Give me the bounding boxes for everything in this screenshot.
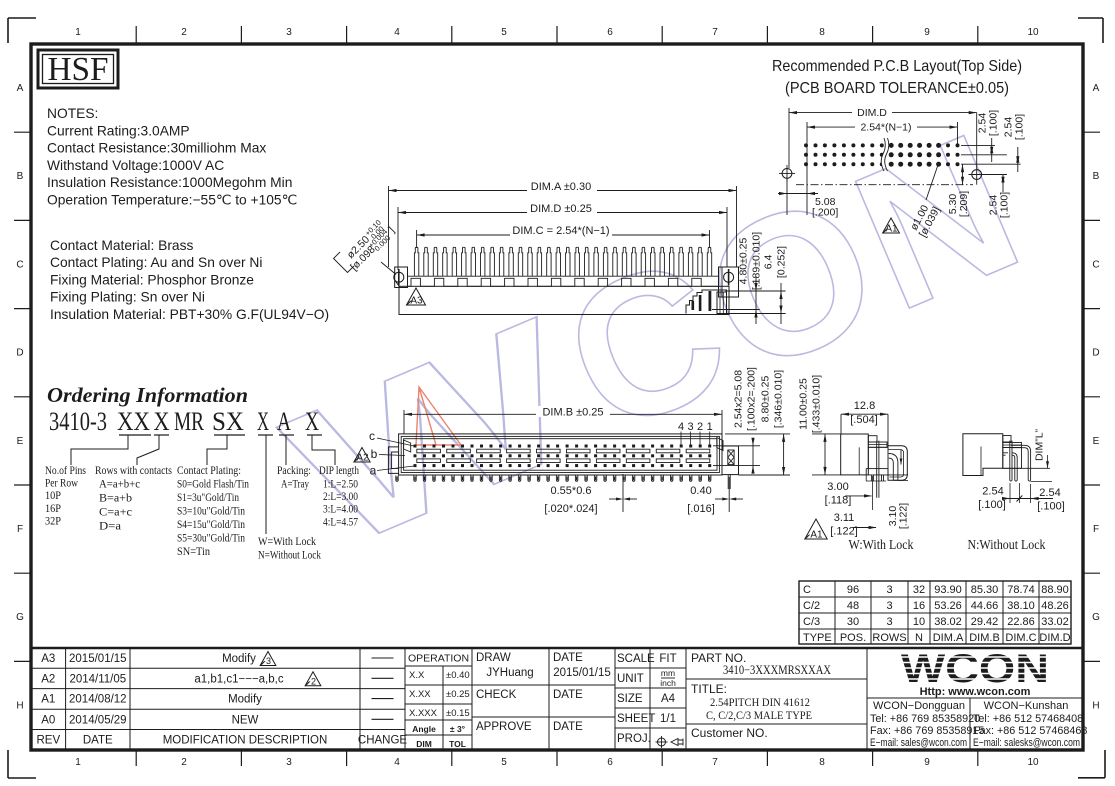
svg-text:CHECK: CHECK bbox=[476, 689, 517, 701]
svg-text:96: 96 bbox=[847, 584, 859, 596]
svg-text:DRAW: DRAW bbox=[476, 652, 511, 664]
svg-text:NEW: NEW bbox=[232, 714, 259, 726]
svg-text:MODIFICATION DESCRIPTION: MODIFICATION DESCRIPTION bbox=[163, 735, 328, 747]
svg-text:A=Tray: A=Tray bbox=[281, 477, 309, 491]
svg-text:[.122]: [.122] bbox=[898, 503, 910, 529]
svg-text:A1: A1 bbox=[810, 530, 823, 541]
svg-text:F: F bbox=[1093, 524, 1099, 535]
svg-text:TOL: TOL bbox=[449, 739, 466, 749]
svg-text:3: 3 bbox=[886, 616, 892, 628]
svg-text:3: 3 bbox=[886, 600, 892, 612]
svg-text:93.90: 93.90 bbox=[934, 584, 962, 596]
svg-text:Contact Resistance:30milliohm: Contact Resistance:30milliohm Max bbox=[47, 141, 266, 156]
svg-text:32: 32 bbox=[913, 584, 925, 596]
svg-text:DIM.D: DIM.D bbox=[857, 107, 887, 119]
svg-text:±0.25: ±0.25 bbox=[446, 689, 470, 700]
svg-text:5: 5 bbox=[501, 757, 507, 768]
svg-text:C: C bbox=[803, 584, 811, 596]
svg-text:a1,b1,c1−−−a,b,c: a1,b1,c1−−−a,b,c bbox=[194, 673, 283, 685]
svg-text:A=a+b+c: A=a+b+c bbox=[99, 477, 140, 491]
svg-text:F: F bbox=[17, 524, 23, 535]
svg-text:11.00±0.25: 11.00±0.25 bbox=[798, 378, 810, 430]
svg-text:Insulation Material: PBT+30%: Insulation Material: PBT+30% G.F(UL94V−O… bbox=[50, 307, 329, 322]
svg-text:2014/08/12: 2014/08/12 bbox=[69, 694, 127, 706]
svg-text:DIM: DIM bbox=[416, 739, 432, 749]
svg-text:C: C bbox=[16, 259, 23, 270]
svg-text:DIP length: DIP length bbox=[319, 463, 359, 477]
svg-text:DATE: DATE bbox=[553, 721, 583, 733]
svg-text:DIM.B ±0.25: DIM.B ±0.25 bbox=[542, 407, 603, 419]
svg-text:DIM.D ±0.25: DIM.D ±0.25 bbox=[530, 203, 592, 215]
svg-text:4.80±0.25: 4.80±0.25 bbox=[738, 238, 750, 285]
svg-text:Http: www.wcon.com: Http: www.wcon.com bbox=[920, 686, 1031, 698]
svg-text:E−mail: sales@wcon.com: E−mail: sales@wcon.com bbox=[870, 737, 967, 749]
svg-text:D=a: D=a bbox=[99, 519, 122, 533]
svg-text:6: 6 bbox=[607, 757, 613, 768]
svg-text:2: 2 bbox=[697, 421, 703, 433]
svg-text:E: E bbox=[17, 436, 24, 447]
svg-text:9: 9 bbox=[924, 27, 930, 38]
svg-text:[.504]: [.504] bbox=[850, 414, 878, 426]
svg-text:Fax: +86 769 85358915: Fax: +86 769 85358915 bbox=[870, 725, 984, 737]
svg-text:Operation Temperature:−55℃ t: Operation Temperature:−55℃ to +105℃ bbox=[47, 193, 297, 208]
svg-text:DIM.A ±0.30: DIM.A ±0.30 bbox=[531, 181, 591, 193]
svg-text:9: 9 bbox=[924, 757, 930, 768]
svg-text:DIM”L”: DIM”L” bbox=[1034, 428, 1046, 461]
svg-text:[.122]: [.122] bbox=[830, 526, 858, 538]
svg-text:W=With Lock: W=With Lock bbox=[258, 534, 316, 548]
svg-text:[.209]: [.209] bbox=[958, 191, 970, 217]
svg-text:44.66: 44.66 bbox=[971, 600, 999, 612]
svg-text:29.42: 29.42 bbox=[971, 616, 999, 628]
svg-text:[.016]: [.016] bbox=[687, 503, 715, 515]
svg-text:DATE: DATE bbox=[83, 735, 113, 747]
svg-text:1: 1 bbox=[75, 27, 81, 38]
svg-text:[.100]: [.100] bbox=[988, 110, 1000, 136]
svg-text:ROWS: ROWS bbox=[872, 632, 906, 644]
svg-text:4: 4 bbox=[394, 757, 400, 768]
svg-text:[.433±0.010]: [.433±0.010] bbox=[811, 375, 823, 433]
svg-text:PROJ.: PROJ. bbox=[617, 733, 651, 745]
svg-text:N=Without Lock: N=Without Lock bbox=[258, 548, 321, 562]
svg-text:WCON: WCON bbox=[901, 647, 1049, 691]
svg-text:12.8: 12.8 bbox=[854, 400, 875, 412]
svg-text:3410-3: 3410-3 bbox=[49, 407, 107, 436]
svg-text:G: G bbox=[16, 612, 24, 623]
svg-text:10: 10 bbox=[1027, 757, 1039, 768]
svg-text:[.346±0.010]: [.346±0.010] bbox=[773, 370, 785, 428]
svg-text:SN=Tin: SN=Tin bbox=[177, 544, 210, 558]
svg-text:38.02: 38.02 bbox=[934, 616, 962, 628]
svg-text:0.40: 0.40 bbox=[690, 485, 711, 497]
svg-text:78.74: 78.74 bbox=[1007, 584, 1035, 596]
svg-text:3.11: 3.11 bbox=[834, 512, 855, 524]
svg-text:E−mail: salesks@wcon.com: E−mail: salesks@wcon.com bbox=[973, 737, 1080, 749]
svg-text:3.00: 3.00 bbox=[827, 481, 848, 493]
svg-text:G: G bbox=[1092, 612, 1100, 623]
svg-text:[.100]: [.100] bbox=[978, 499, 1006, 511]
svg-text:8: 8 bbox=[819, 27, 825, 38]
svg-text:DIM.D: DIM.D bbox=[1039, 632, 1070, 644]
svg-text:6: 6 bbox=[607, 27, 613, 38]
svg-text:2: 2 bbox=[311, 676, 316, 686]
svg-text:SHEET: SHEET bbox=[617, 713, 655, 725]
svg-text:[.189±0.010]: [.189±0.010] bbox=[751, 232, 763, 290]
svg-text:A1: A1 bbox=[41, 694, 55, 706]
svg-text:8: 8 bbox=[819, 757, 825, 768]
svg-text:FIT: FIT bbox=[659, 653, 676, 665]
svg-text:TITLE:: TITLE: bbox=[691, 682, 727, 696]
svg-text:D: D bbox=[16, 348, 23, 359]
svg-text:Fax: +86 512 57468468: Fax: +86 512 57468468 bbox=[973, 725, 1087, 737]
svg-text:Rows with contacts: Rows with contacts bbox=[95, 463, 172, 477]
svg-text:N:Without Lock: N:Without Lock bbox=[968, 537, 1046, 552]
svg-text:Tel: +86 769 85358920: Tel: +86 769 85358920 bbox=[870, 713, 980, 725]
svg-text:38.10: 38.10 bbox=[1007, 600, 1035, 612]
svg-text:S4=15u"Gold/Tin: S4=15u"Gold/Tin bbox=[177, 517, 245, 531]
svg-text:16: 16 bbox=[913, 600, 925, 612]
svg-text:±0.15: ±0.15 bbox=[446, 708, 470, 719]
svg-text:OPERATION: OPERATION bbox=[408, 653, 469, 665]
svg-text:UNIT: UNIT bbox=[617, 673, 644, 685]
svg-text:X.X: X.X bbox=[409, 670, 425, 681]
svg-text:X: X bbox=[305, 407, 319, 436]
svg-text:2015/01/15: 2015/01/15 bbox=[553, 667, 611, 679]
svg-text:Modify: Modify bbox=[222, 653, 256, 665]
svg-text:30: 30 bbox=[847, 616, 859, 628]
svg-text:TYPE: TYPE bbox=[803, 632, 832, 644]
svg-text:88.90: 88.90 bbox=[1041, 584, 1069, 596]
svg-text:8.80±0.25: 8.80±0.25 bbox=[760, 376, 772, 423]
svg-text:10: 10 bbox=[1027, 27, 1039, 38]
svg-text:1: 1 bbox=[75, 757, 81, 768]
svg-text:D: D bbox=[1092, 348, 1099, 359]
svg-text:± 3°: ± 3° bbox=[450, 724, 466, 734]
svg-text:[.100x2=.200]: [.100x2=.200] bbox=[746, 367, 758, 431]
svg-text:[.020*.024]: [.020*.024] bbox=[544, 503, 597, 515]
svg-text:C/2: C/2 bbox=[803, 600, 820, 612]
svg-text:7: 7 bbox=[712, 27, 718, 38]
svg-text:[.200]: [.200] bbox=[812, 207, 838, 219]
svg-text:Withstand Voltage:1000V AC: Withstand Voltage:1000V AC bbox=[47, 158, 224, 173]
svg-text:REV: REV bbox=[36, 735, 60, 747]
svg-text:32P: 32P bbox=[45, 513, 61, 527]
svg-text:A3: A3 bbox=[41, 653, 55, 665]
svg-text:A2: A2 bbox=[41, 673, 55, 685]
svg-text:Angle: Angle bbox=[412, 724, 436, 734]
svg-text:HSF: HSF bbox=[48, 51, 109, 88]
svg-text:Customer NO.: Customer NO. bbox=[691, 726, 768, 740]
svg-text:2.54PITCH DIN 41612: 2.54PITCH DIN 41612 bbox=[710, 697, 810, 709]
svg-text:SX: SX bbox=[212, 407, 244, 436]
svg-text:A: A bbox=[17, 83, 24, 94]
svg-text:DIM.B: DIM.B bbox=[969, 632, 1000, 644]
svg-text:DIM.C = 2.54*(N−1): DIM.C = 2.54*(N−1) bbox=[512, 225, 609, 237]
svg-text:mm: mm bbox=[661, 668, 675, 678]
svg-text:C: C bbox=[1092, 259, 1099, 270]
svg-text:DATE: DATE bbox=[553, 652, 583, 664]
svg-text:X: X bbox=[257, 407, 269, 436]
svg-text:Contact Plating:: Contact Plating: bbox=[177, 463, 241, 477]
svg-text:0.55*0.6: 0.55*0.6 bbox=[551, 485, 592, 497]
svg-text:H: H bbox=[16, 700, 23, 711]
svg-text:Current Rating:3.0AMP: Current Rating:3.0AMP bbox=[47, 123, 190, 138]
svg-text:b: b bbox=[371, 447, 378, 461]
svg-text:[.118]: [.118] bbox=[825, 495, 852, 507]
svg-text:DIM.A: DIM.A bbox=[933, 632, 964, 644]
svg-text:[.100]: [.100] bbox=[999, 192, 1011, 218]
svg-text:4: 4 bbox=[394, 27, 400, 38]
svg-text:[0.252]: [0.252] bbox=[776, 246, 788, 278]
svg-text:[.100]: [.100] bbox=[1014, 114, 1026, 140]
svg-text:2.54: 2.54 bbox=[1039, 487, 1060, 499]
svg-text:SCALE: SCALE bbox=[617, 653, 655, 665]
svg-text:WCON−Dongguan: WCON−Dongguan bbox=[873, 700, 965, 712]
svg-text:W:With Lock: W:With Lock bbox=[849, 537, 914, 552]
svg-text:1/1: 1/1 bbox=[660, 713, 676, 725]
svg-text:A: A bbox=[277, 407, 291, 436]
svg-text:C, C/2,C/3 MALE TYPE: C, C/2,C/3 MALE TYPE bbox=[706, 710, 812, 722]
svg-text:Packing:: Packing: bbox=[277, 463, 311, 477]
svg-text:Contact Material: Brass: Contact Material: Brass bbox=[50, 238, 193, 253]
svg-text:Recommended P.C.B Layout(Top: Recommended P.C.B Layout(Top Side) bbox=[772, 58, 1022, 75]
svg-text:CHANGE: CHANGE bbox=[358, 735, 408, 747]
svg-text:2014/05/29: 2014/05/29 bbox=[69, 714, 127, 726]
svg-text:3410−3XXXMRSXXAX: 3410−3XXXMRSXXAX bbox=[723, 663, 831, 677]
svg-text:B=a+b: B=a+b bbox=[99, 491, 132, 505]
svg-text:DIM.C: DIM.C bbox=[1005, 632, 1036, 644]
svg-text:Ordering Information: Ordering Information bbox=[47, 383, 248, 407]
svg-text:3: 3 bbox=[286, 27, 292, 38]
svg-text:C=a+c: C=a+c bbox=[99, 505, 132, 519]
svg-text:A0: A0 bbox=[41, 714, 55, 726]
svg-text:WCON−Kunshan: WCON−Kunshan bbox=[984, 700, 1069, 712]
svg-text:2.54*(N−1): 2.54*(N−1) bbox=[860, 122, 911, 134]
svg-text:c: c bbox=[369, 429, 375, 443]
svg-text:2.54x2=5.08: 2.54x2=5.08 bbox=[733, 370, 745, 428]
svg-text:MR: MR bbox=[174, 407, 204, 436]
svg-text:Modify: Modify bbox=[228, 694, 262, 706]
svg-text:6.4: 6.4 bbox=[763, 255, 775, 270]
svg-text:±0.40: ±0.40 bbox=[446, 670, 470, 681]
svg-text:48.26: 48.26 bbox=[1041, 600, 1069, 612]
svg-text:S1=3u"Gold/Tin: S1=3u"Gold/Tin bbox=[177, 490, 239, 504]
svg-text:Insulation Resistance:1000Meg: Insulation Resistance:1000Megohm Min bbox=[47, 175, 292, 190]
svg-text:NOTES:: NOTES: bbox=[47, 106, 98, 121]
svg-text:1: 1 bbox=[707, 421, 713, 433]
svg-text:A: A bbox=[1093, 83, 1100, 94]
svg-text:5: 5 bbox=[501, 27, 507, 38]
svg-text:X.XX: X.XX bbox=[409, 689, 431, 700]
svg-text:[.100]: [.100] bbox=[1037, 501, 1065, 513]
svg-text:S5=30u"Gold/Tin: S5=30u"Gold/Tin bbox=[177, 531, 245, 545]
svg-text:APPROVE: APPROVE bbox=[476, 721, 532, 733]
svg-text:2: 2 bbox=[181, 757, 187, 768]
svg-text:JYHuang: JYHuang bbox=[486, 667, 533, 679]
svg-text:XX: XX bbox=[117, 407, 150, 436]
svg-text:Contact Plating: Au and Sn: Contact Plating: Au and Sn over Ni bbox=[50, 255, 262, 270]
svg-text:X: X bbox=[154, 407, 170, 436]
svg-text:DATE: DATE bbox=[553, 689, 583, 701]
svg-text:33.02: 33.02 bbox=[1041, 616, 1069, 628]
svg-text:85.30: 85.30 bbox=[971, 584, 999, 596]
svg-text:C/3: C/3 bbox=[803, 616, 820, 628]
svg-text:Fixing Plating: Sn over Ni: Fixing Plating: Sn over Ni bbox=[50, 290, 205, 305]
svg-text:2: 2 bbox=[181, 27, 187, 38]
svg-text:22.86: 22.86 bbox=[1007, 616, 1035, 628]
svg-text:3: 3 bbox=[286, 757, 292, 768]
svg-text:inch: inch bbox=[660, 678, 676, 688]
svg-text:E: E bbox=[1093, 436, 1100, 447]
svg-text:N: N bbox=[915, 632, 923, 644]
svg-text:48: 48 bbox=[847, 600, 859, 612]
svg-text:2014/11/05: 2014/11/05 bbox=[69, 673, 126, 685]
svg-text:X.XXX: X.XXX bbox=[409, 708, 438, 719]
svg-text:4:L=4.57: 4:L=4.57 bbox=[323, 514, 358, 528]
svg-text:4: 4 bbox=[678, 421, 684, 433]
svg-text:SIZE: SIZE bbox=[617, 693, 643, 705]
svg-text:A1: A1 bbox=[885, 224, 898, 235]
svg-text:Fixing Material: Phosphor B: Fixing Material: Phosphor Bronze bbox=[50, 272, 254, 287]
svg-text:A3: A3 bbox=[410, 296, 423, 307]
svg-text:3: 3 bbox=[687, 421, 693, 433]
svg-text:Tel: +86 512 57468408: Tel: +86 512 57468408 bbox=[973, 713, 1083, 725]
svg-text:a: a bbox=[370, 464, 377, 478]
svg-text:3: 3 bbox=[886, 584, 892, 596]
svg-text:2.54: 2.54 bbox=[982, 486, 1003, 498]
svg-text:2015/01/15: 2015/01/15 bbox=[69, 653, 127, 665]
svg-text:(PCB BOARD TOLERANCE±0.05): (PCB BOARD TOLERANCE±0.05) bbox=[785, 80, 1009, 97]
svg-text:A2: A2 bbox=[356, 453, 369, 464]
svg-text:10: 10 bbox=[913, 616, 925, 628]
svg-text:3: 3 bbox=[266, 656, 271, 666]
svg-text:POS.: POS. bbox=[840, 632, 866, 644]
svg-text:B: B bbox=[1093, 171, 1100, 182]
svg-text:A4: A4 bbox=[661, 693, 676, 705]
svg-text:S0=Gold Flash/Tin: S0=Gold Flash/Tin bbox=[177, 477, 249, 491]
svg-text:S3=10u"Gold/Tin: S3=10u"Gold/Tin bbox=[177, 504, 245, 518]
svg-text:53.26: 53.26 bbox=[934, 600, 962, 612]
svg-text:B: B bbox=[17, 171, 24, 182]
svg-text:7: 7 bbox=[712, 757, 718, 768]
svg-text:H: H bbox=[1092, 700, 1099, 711]
